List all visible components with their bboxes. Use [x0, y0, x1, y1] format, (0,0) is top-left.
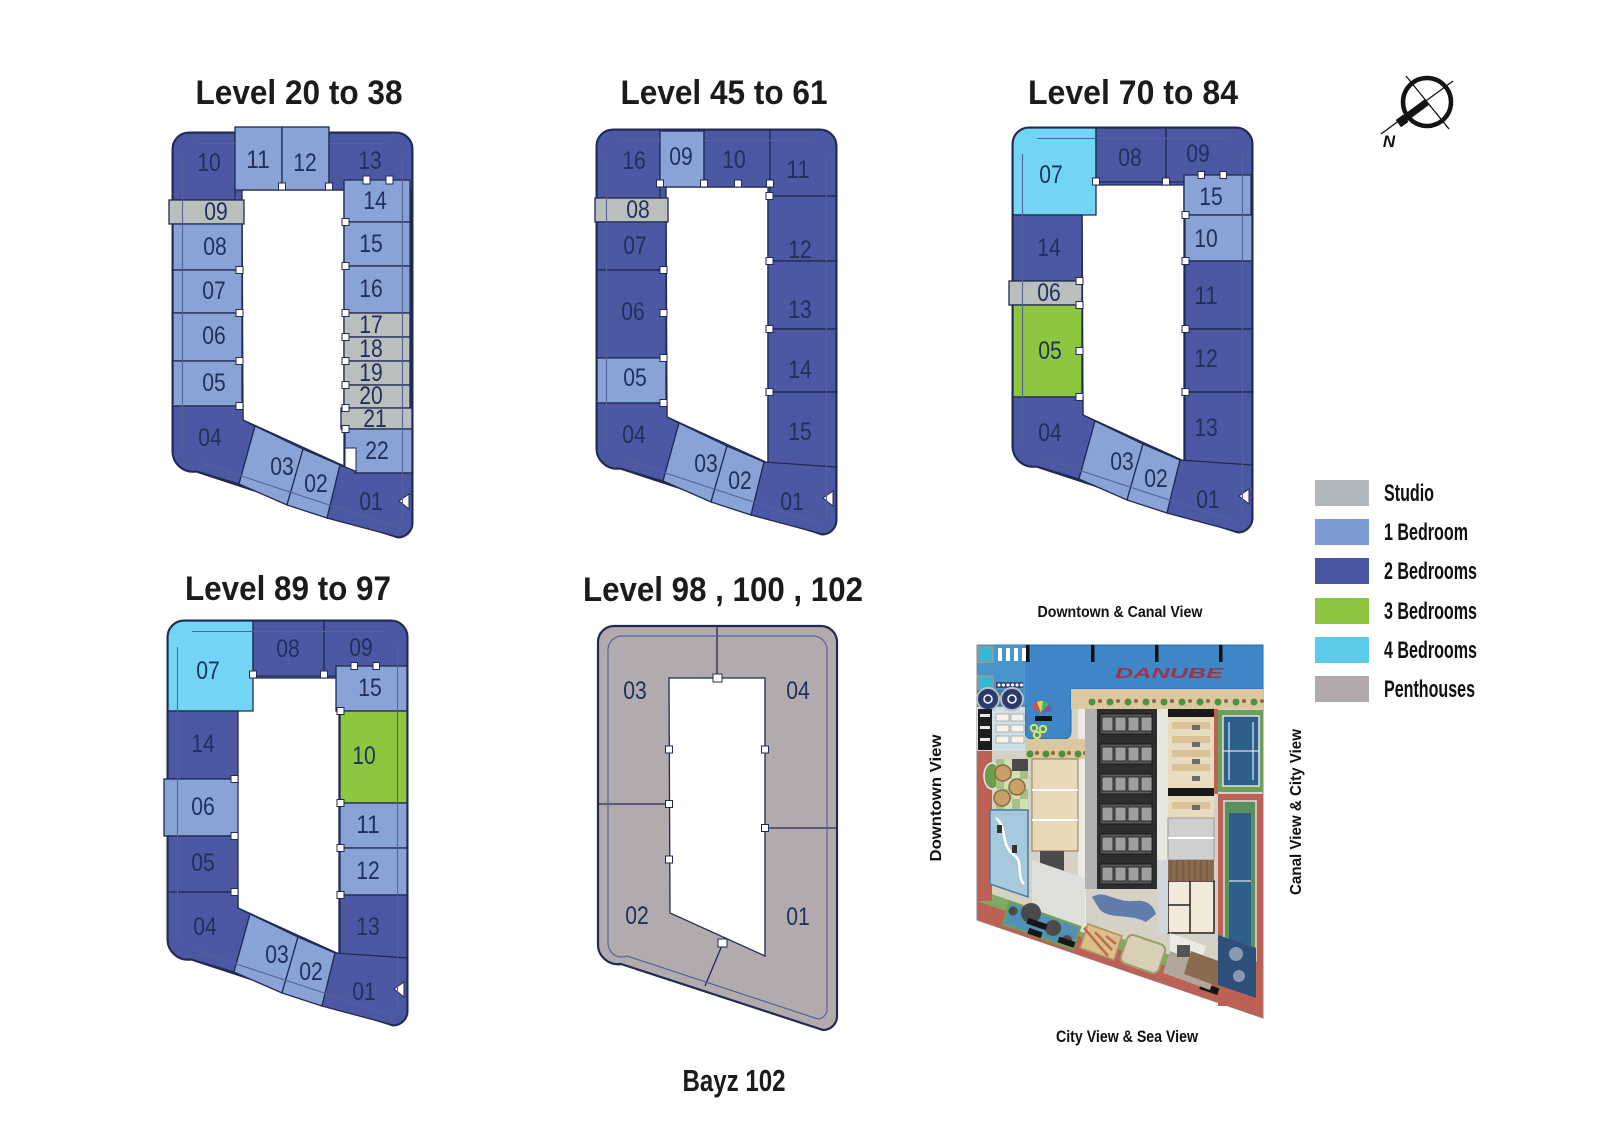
- svg-text:15: 15: [1199, 183, 1223, 211]
- svg-text:08: 08: [1118, 144, 1142, 172]
- svg-text:4 Bedrooms: 4 Bedrooms: [1384, 637, 1477, 664]
- svg-text:07: 07: [1039, 161, 1063, 189]
- svg-text:Bayz 102: Bayz 102: [683, 1063, 786, 1098]
- svg-text:13: 13: [1194, 414, 1218, 442]
- svg-text:04: 04: [1038, 419, 1062, 447]
- svg-text:13: 13: [356, 913, 380, 941]
- svg-text:09: 09: [349, 634, 373, 662]
- svg-text:02: 02: [299, 958, 323, 986]
- svg-text:08: 08: [276, 635, 300, 663]
- svg-text:16: 16: [359, 275, 383, 303]
- svg-text:City View & Sea View: City View & Sea View: [1056, 1027, 1199, 1046]
- svg-text:07: 07: [196, 657, 220, 685]
- svg-text:06: 06: [191, 793, 215, 821]
- svg-text:01: 01: [352, 978, 376, 1006]
- svg-text:05: 05: [1038, 337, 1062, 365]
- svg-text:03: 03: [694, 450, 718, 478]
- svg-text:DANUBE: DANUBE: [1115, 665, 1225, 682]
- svg-text:02: 02: [625, 902, 649, 930]
- svg-text:04: 04: [198, 424, 222, 452]
- svg-text:10: 10: [352, 742, 376, 770]
- svg-text:01: 01: [786, 903, 810, 931]
- svg-text:Level 89 to 97: Level 89 to 97: [185, 570, 391, 608]
- svg-text:Downtown & Canal View: Downtown & Canal View: [1038, 604, 1203, 621]
- svg-text:15: 15: [788, 418, 812, 446]
- svg-text:11: 11: [246, 146, 270, 174]
- svg-text:11: 11: [356, 811, 380, 839]
- svg-text:01: 01: [359, 488, 383, 516]
- svg-text:Level 45 to 61: Level 45 to 61: [621, 74, 828, 112]
- svg-text:10: 10: [722, 146, 746, 174]
- svg-text:07: 07: [202, 277, 226, 305]
- svg-text:04: 04: [193, 913, 217, 941]
- svg-text:N: N: [1383, 132, 1396, 151]
- svg-text:03: 03: [1110, 448, 1134, 476]
- svg-text:11: 11: [786, 156, 810, 184]
- svg-text:08: 08: [626, 196, 650, 224]
- svg-text:03: 03: [623, 677, 647, 705]
- svg-text:05: 05: [623, 364, 647, 392]
- svg-text:06: 06: [621, 298, 645, 326]
- svg-text:14: 14: [788, 356, 812, 384]
- svg-text:12: 12: [1194, 345, 1218, 373]
- svg-text:14: 14: [191, 730, 215, 758]
- svg-text:10: 10: [1194, 225, 1218, 253]
- svg-text:15: 15: [358, 674, 382, 702]
- svg-text:04: 04: [622, 421, 646, 449]
- svg-text:05: 05: [202, 369, 226, 397]
- svg-text:3 Bedrooms: 3 Bedrooms: [1384, 598, 1477, 625]
- svg-text:13: 13: [358, 147, 382, 175]
- svg-text:1 Bedroom: 1 Bedroom: [1384, 519, 1468, 546]
- svg-text:10: 10: [197, 149, 221, 177]
- svg-text:Level 70 to 84: Level 70 to 84: [1028, 74, 1238, 112]
- svg-text:Penthouses: Penthouses: [1384, 676, 1475, 703]
- svg-text:04: 04: [786, 677, 810, 705]
- svg-text:14: 14: [1037, 234, 1061, 262]
- svg-text:07: 07: [623, 232, 647, 260]
- svg-text:03: 03: [270, 453, 294, 481]
- svg-text:2 Bedrooms: 2 Bedrooms: [1384, 558, 1477, 585]
- svg-text:06: 06: [1037, 279, 1061, 307]
- svg-text:05: 05: [191, 849, 215, 877]
- svg-text:22: 22: [365, 437, 389, 465]
- svg-text:02: 02: [304, 470, 328, 498]
- svg-text:09: 09: [204, 198, 228, 226]
- svg-text:11: 11: [1194, 282, 1218, 310]
- svg-text:09: 09: [669, 143, 693, 171]
- svg-text:12: 12: [356, 857, 380, 885]
- svg-text:06: 06: [202, 322, 226, 350]
- svg-text:Canal View & City View: Canal View & City View: [1288, 728, 1305, 895]
- svg-text:16: 16: [622, 147, 646, 175]
- svg-text:Level 20 to 38: Level 20 to 38: [196, 74, 403, 112]
- svg-text:Level 98 , 100 , 102: Level 98 , 100 , 102: [583, 571, 863, 609]
- svg-text:01: 01: [1196, 486, 1220, 514]
- svg-text:02: 02: [1144, 465, 1168, 493]
- svg-text:21: 21: [363, 405, 387, 433]
- svg-text:15: 15: [359, 230, 383, 258]
- svg-text:Downtown View: Downtown View: [928, 734, 945, 862]
- svg-text:01: 01: [780, 488, 804, 516]
- svg-text:03: 03: [265, 941, 289, 969]
- svg-text:12: 12: [293, 149, 317, 177]
- svg-text:09: 09: [1186, 140, 1210, 168]
- svg-text:02: 02: [728, 467, 752, 495]
- svg-text:12: 12: [788, 236, 812, 264]
- svg-text:08: 08: [203, 233, 227, 261]
- svg-text:14: 14: [363, 187, 387, 215]
- svg-text:Studio: Studio: [1384, 480, 1434, 507]
- svg-text:13: 13: [788, 296, 812, 324]
